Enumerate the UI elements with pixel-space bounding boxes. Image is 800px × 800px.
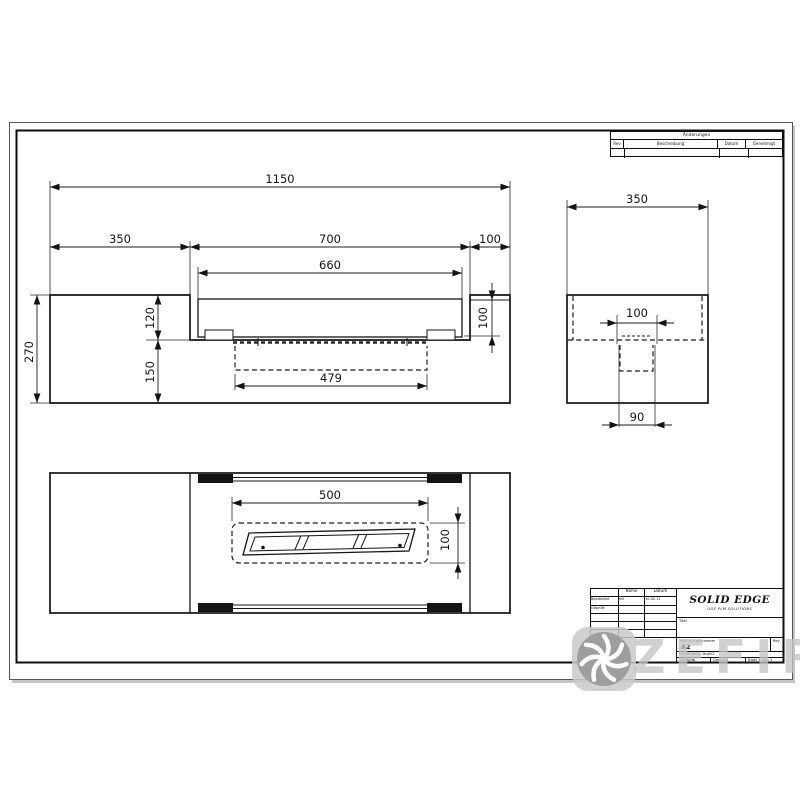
tb-edited-date: 10.02.11 — [645, 597, 677, 606]
dim-front-height: 270 — [22, 341, 36, 363]
dim-front-right-depth: 100 — [476, 307, 490, 329]
tb-edited-name: mk — [619, 597, 645, 606]
tb-drawing-number-label: Zeichnungsnummer — [677, 638, 770, 643]
title-block: Name Datum Bearbeitet mk 10.02.11 Geprüf… — [590, 588, 784, 663]
tb-logo-cell: SOLID EDGE UGS PLM SOLUTIONS — [677, 589, 783, 618]
plan-view: 500 100 — [50, 473, 510, 613]
tb-weight-cell: Gewicht — [711, 658, 746, 662]
tb-drawing-number-value: A2 — [677, 644, 770, 652]
tb-rev-cell: Rev — [771, 638, 783, 652]
dim-front-tray-width: 660 — [319, 258, 341, 272]
dim-plan-burner-length: 500 — [319, 488, 341, 502]
tb-scale-cell: Maßstab — [677, 658, 711, 662]
dim-front-upper-depth: 120 — [143, 307, 157, 329]
tb-checked-label: Geprüft — [591, 606, 619, 614]
tb-lower-left-cell — [591, 638, 677, 662]
tb-empty-cell — [645, 630, 677, 638]
tb-drawing-number-cell: Zeichnungsnummer A2 — [677, 638, 771, 652]
revision-col-date: Datum — [718, 140, 746, 148]
tb-empty-cell — [645, 606, 677, 614]
tb-date-header: Datum — [645, 589, 677, 597]
dim-side-slot: 100 — [626, 306, 648, 320]
dim-front-overall: 1150 — [265, 172, 294, 186]
tb-empty-cell — [619, 606, 645, 614]
tb-title-label: Titel — [677, 618, 783, 623]
revision-col-description: Beschreibung — [624, 140, 718, 148]
cad-linework: 1150 350 700 100 660 270 120 150 100 479… — [0, 0, 800, 800]
dim-front-hidden-width: 479 — [320, 371, 342, 385]
dim-front-right-section: 100 — [479, 232, 501, 246]
tb-empty-cell — [591, 630, 619, 638]
tb-edited-label: Bearbeitet — [591, 597, 619, 606]
dim-front-opening: 700 — [319, 232, 341, 246]
tb-empty-cell — [591, 614, 619, 622]
tb-corner-cell — [591, 589, 619, 597]
tb-empty-cell — [645, 622, 677, 630]
dim-front-left-section: 350 — [109, 232, 131, 246]
dim-plan-burner-depth: 100 — [438, 529, 452, 551]
solid-edge-logo: SOLID EDGE — [677, 594, 783, 607]
revision-col-approved: Genehmigt — [746, 140, 782, 148]
tb-name-header: Name — [619, 589, 645, 597]
tb-empty-cell — [619, 630, 645, 638]
dim-side-overall: 350 — [626, 192, 648, 206]
tb-sheet-cell: Blatt 1 von 1 — [746, 658, 783, 662]
tb-empty-cell — [619, 622, 645, 630]
revision-col-rev: Rev — [611, 140, 624, 148]
revision-empty-row — [611, 149, 782, 158]
dim-front-lower-depth: 150 — [143, 361, 157, 383]
tb-empty-cell — [619, 614, 645, 622]
dim-side-pot: 90 — [630, 410, 645, 424]
tb-title-cell: Titel — [677, 618, 783, 638]
solid-edge-logo-subtitle: UGS PLM SOLUTIONS — [677, 607, 783, 611]
revision-table: Änderungen Rev Beschreibung Datum Genehm… — [610, 131, 783, 157]
tb-rev-label: Rev — [771, 638, 783, 643]
tb-empty-cell — [591, 622, 619, 630]
drawing-sheet: 1150 350 700 100 660 270 120 150 100 479… — [0, 0, 800, 800]
revision-table-title: Änderungen — [611, 132, 782, 140]
tb-empty-cell — [645, 614, 677, 622]
